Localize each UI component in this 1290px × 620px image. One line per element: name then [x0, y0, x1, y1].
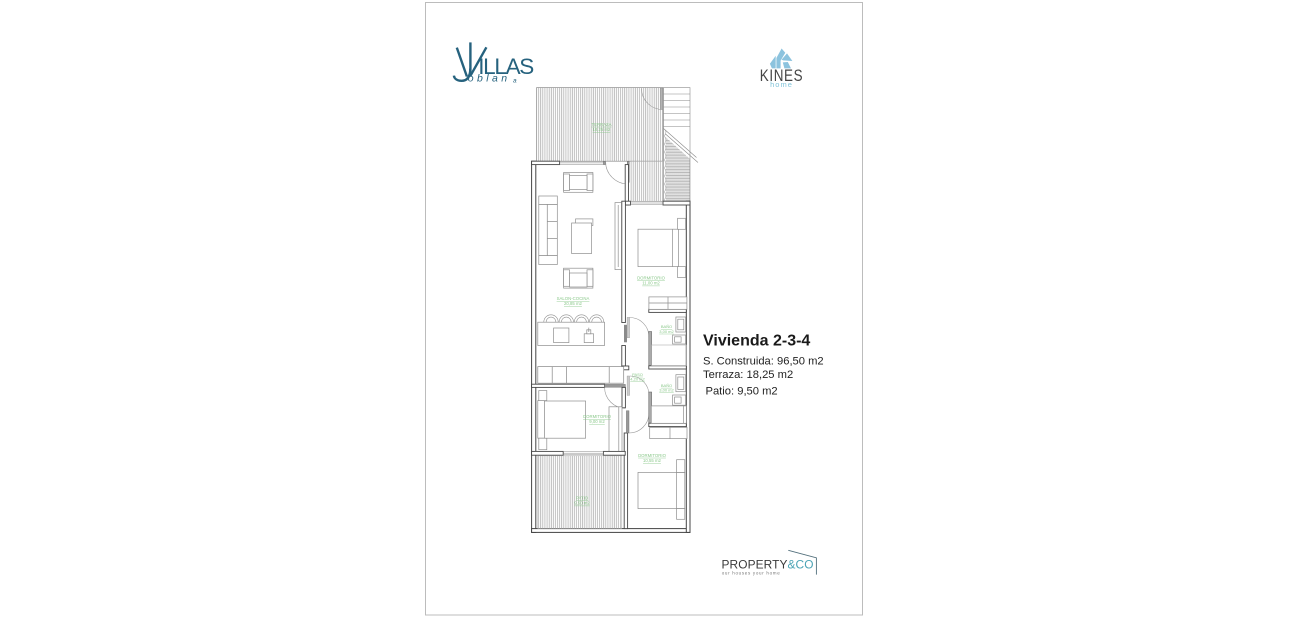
svg-text:20,85 m2: 20,85 m2 [564, 301, 583, 306]
svg-text:4,20 m2: 4,20 m2 [630, 377, 645, 382]
svg-text:10,55 m2: 10,55 m2 [643, 458, 662, 463]
svg-text:Vivienda 2-3-4: Vivienda 2-3-4 [703, 333, 810, 350]
svg-text:18,25 m2: 18,25 m2 [593, 127, 612, 132]
svg-text:9,00 m2: 9,00 m2 [589, 419, 605, 424]
svg-text:S. Construida: 96,50 m2: S. Construida: 96,50 m2 [703, 356, 824, 368]
svg-text:11,00 m2: 11,00 m2 [642, 281, 660, 286]
svg-text:a: a [513, 78, 517, 85]
svg-text:PROPERTY&CO: PROPERTY&CO [722, 558, 814, 572]
svg-text:oblan: oblan [468, 73, 511, 85]
svg-text:home: home [770, 80, 793, 89]
svg-text:Terraza: 18,25 m2: Terraza: 18,25 m2 [703, 369, 793, 381]
svg-text:9,50 m2: 9,50 m2 [574, 501, 590, 506]
svg-text:Patio: 9,50 m2: Patio: 9,50 m2 [706, 386, 778, 398]
svg-text:our houses your home: our houses your home [722, 571, 781, 576]
svg-text:3,00 m2: 3,00 m2 [659, 329, 674, 334]
svg-text:3,00 m2: 3,00 m2 [659, 388, 674, 393]
